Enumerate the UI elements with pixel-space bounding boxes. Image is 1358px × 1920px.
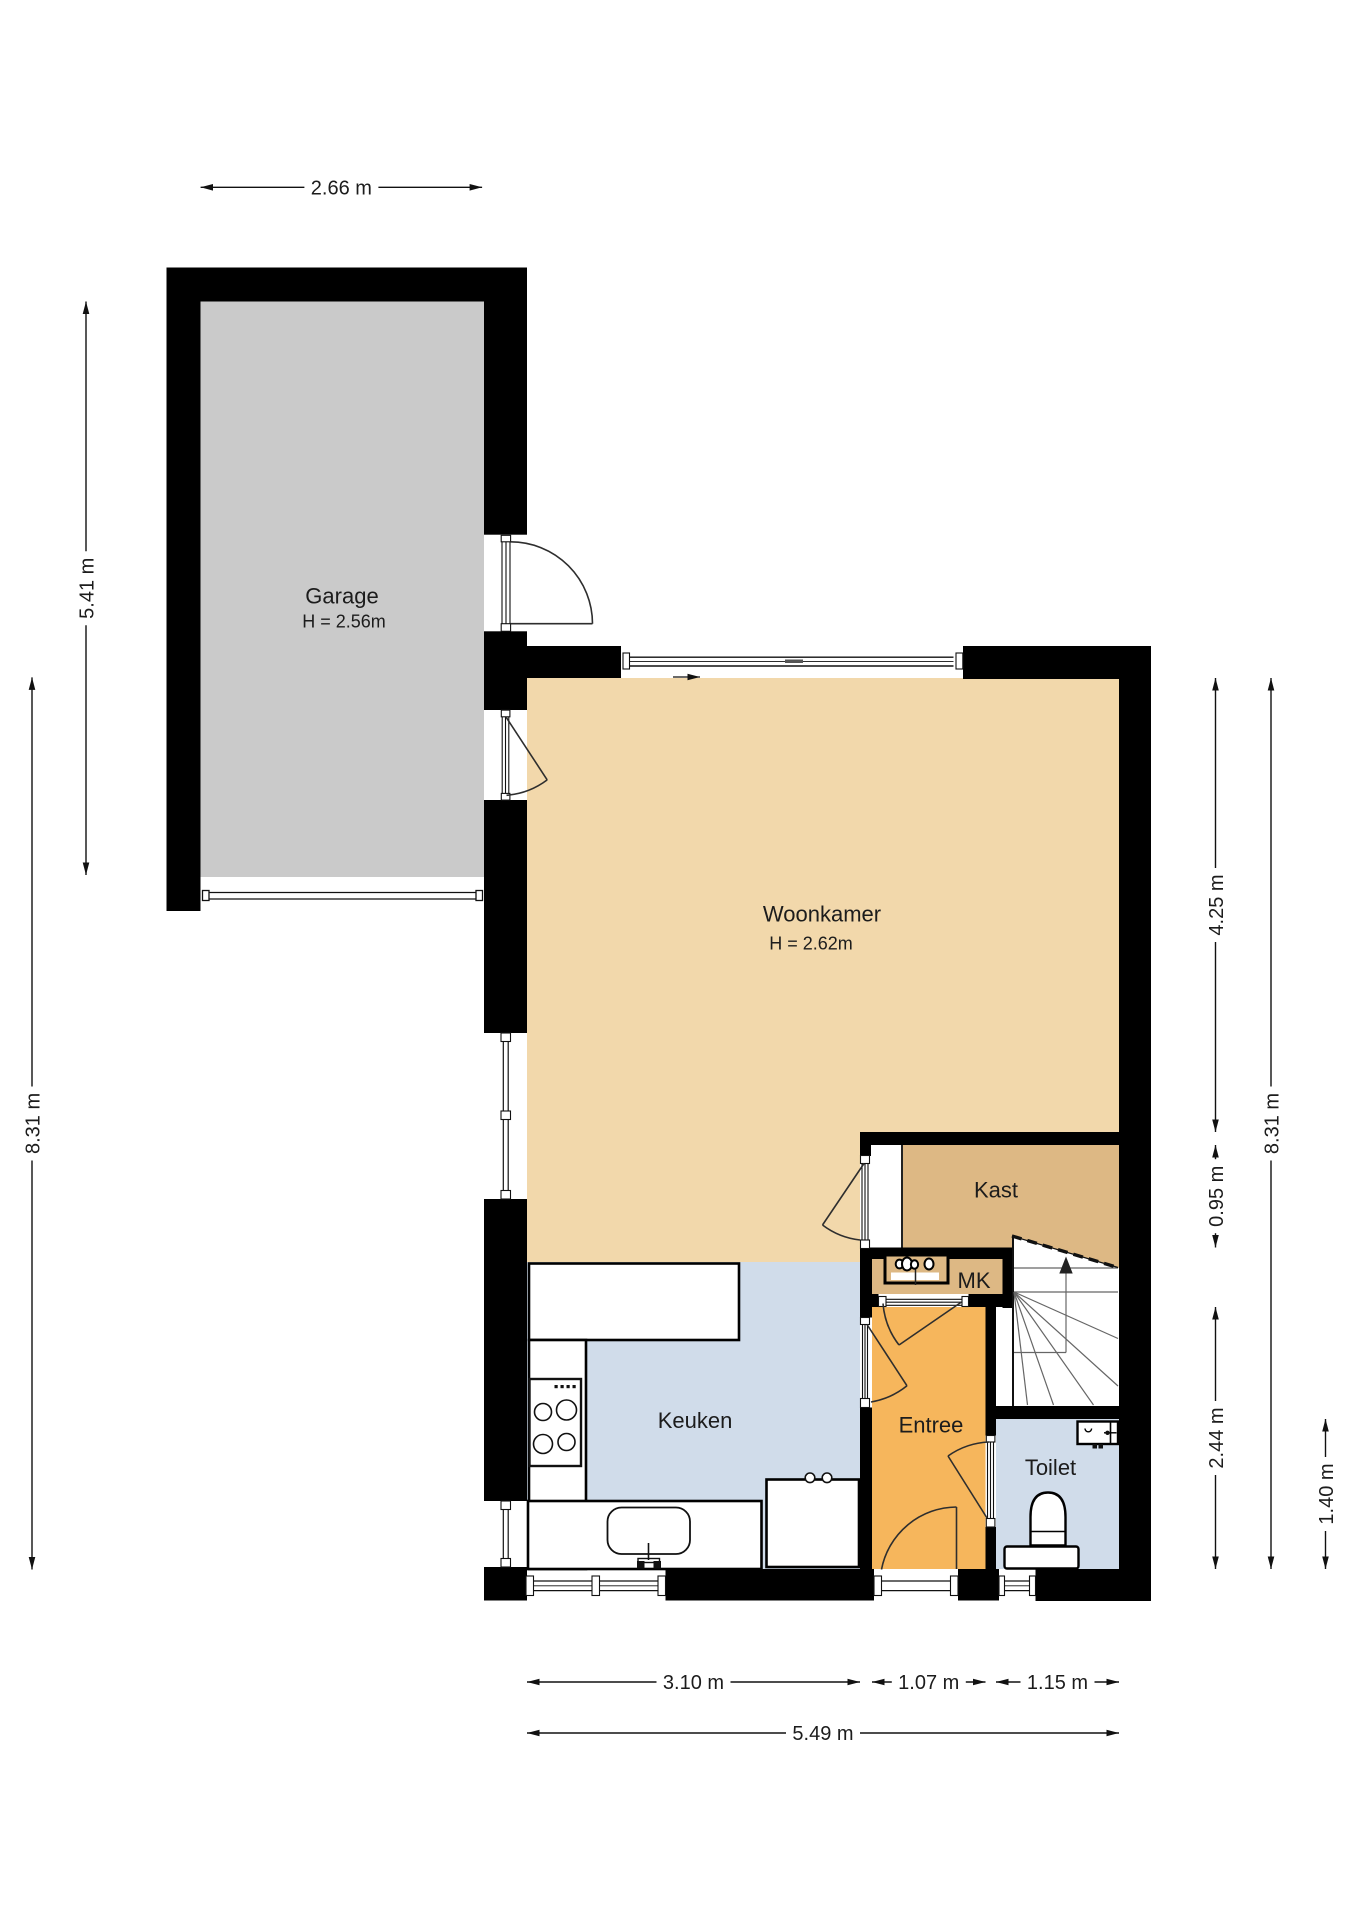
- svg-text:Woonkamer: Woonkamer: [763, 902, 881, 927]
- svg-text:Toilet: Toilet: [1025, 1455, 1076, 1480]
- svg-text:MK: MK: [958, 1268, 991, 1293]
- svg-text:H = 2.56m: H = 2.56m: [302, 612, 386, 632]
- svg-text:1.40 m: 1.40 m: [1316, 1463, 1338, 1524]
- svg-text:0.95 m: 0.95 m: [1206, 1166, 1228, 1227]
- svg-text:2.44 m: 2.44 m: [1206, 1407, 1228, 1468]
- svg-text:4.25 m: 4.25 m: [1206, 874, 1228, 935]
- svg-text:H = 2.62m: H = 2.62m: [769, 934, 853, 954]
- svg-text:8.31 m: 8.31 m: [23, 1093, 45, 1154]
- svg-text:1.15 m: 1.15 m: [1027, 1672, 1088, 1694]
- svg-text:3.10 m: 3.10 m: [663, 1672, 724, 1694]
- svg-text:Kast: Kast: [974, 1178, 1018, 1203]
- svg-text:Garage: Garage: [305, 584, 378, 609]
- svg-text:2.66 m: 2.66 m: [311, 177, 372, 199]
- svg-text:Entree: Entree: [899, 1413, 964, 1438]
- svg-text:1.07 m: 1.07 m: [898, 1672, 959, 1694]
- svg-text:5.41 m: 5.41 m: [77, 558, 99, 619]
- svg-text:8.31 m: 8.31 m: [1262, 1093, 1284, 1154]
- svg-text:Keuken: Keuken: [658, 1408, 733, 1433]
- svg-text:5.49 m: 5.49 m: [792, 1723, 853, 1745]
